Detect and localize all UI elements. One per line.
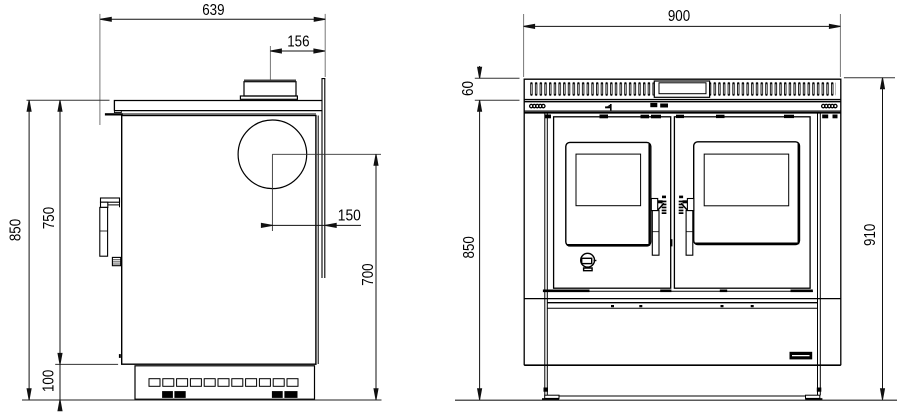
svg-text:100: 100	[41, 370, 58, 392]
svg-text:850: 850	[461, 236, 478, 258]
svg-text:750: 750	[41, 207, 58, 229]
svg-text:639: 639	[202, 2, 224, 19]
svg-text:900: 900	[668, 8, 690, 25]
svg-text:850: 850	[7, 219, 24, 241]
svg-text:150: 150	[338, 207, 361, 224]
svg-text:700: 700	[360, 263, 377, 285]
svg-text:156: 156	[287, 33, 309, 50]
svg-text:60: 60	[460, 81, 477, 96]
svg-text:910: 910	[862, 224, 879, 246]
